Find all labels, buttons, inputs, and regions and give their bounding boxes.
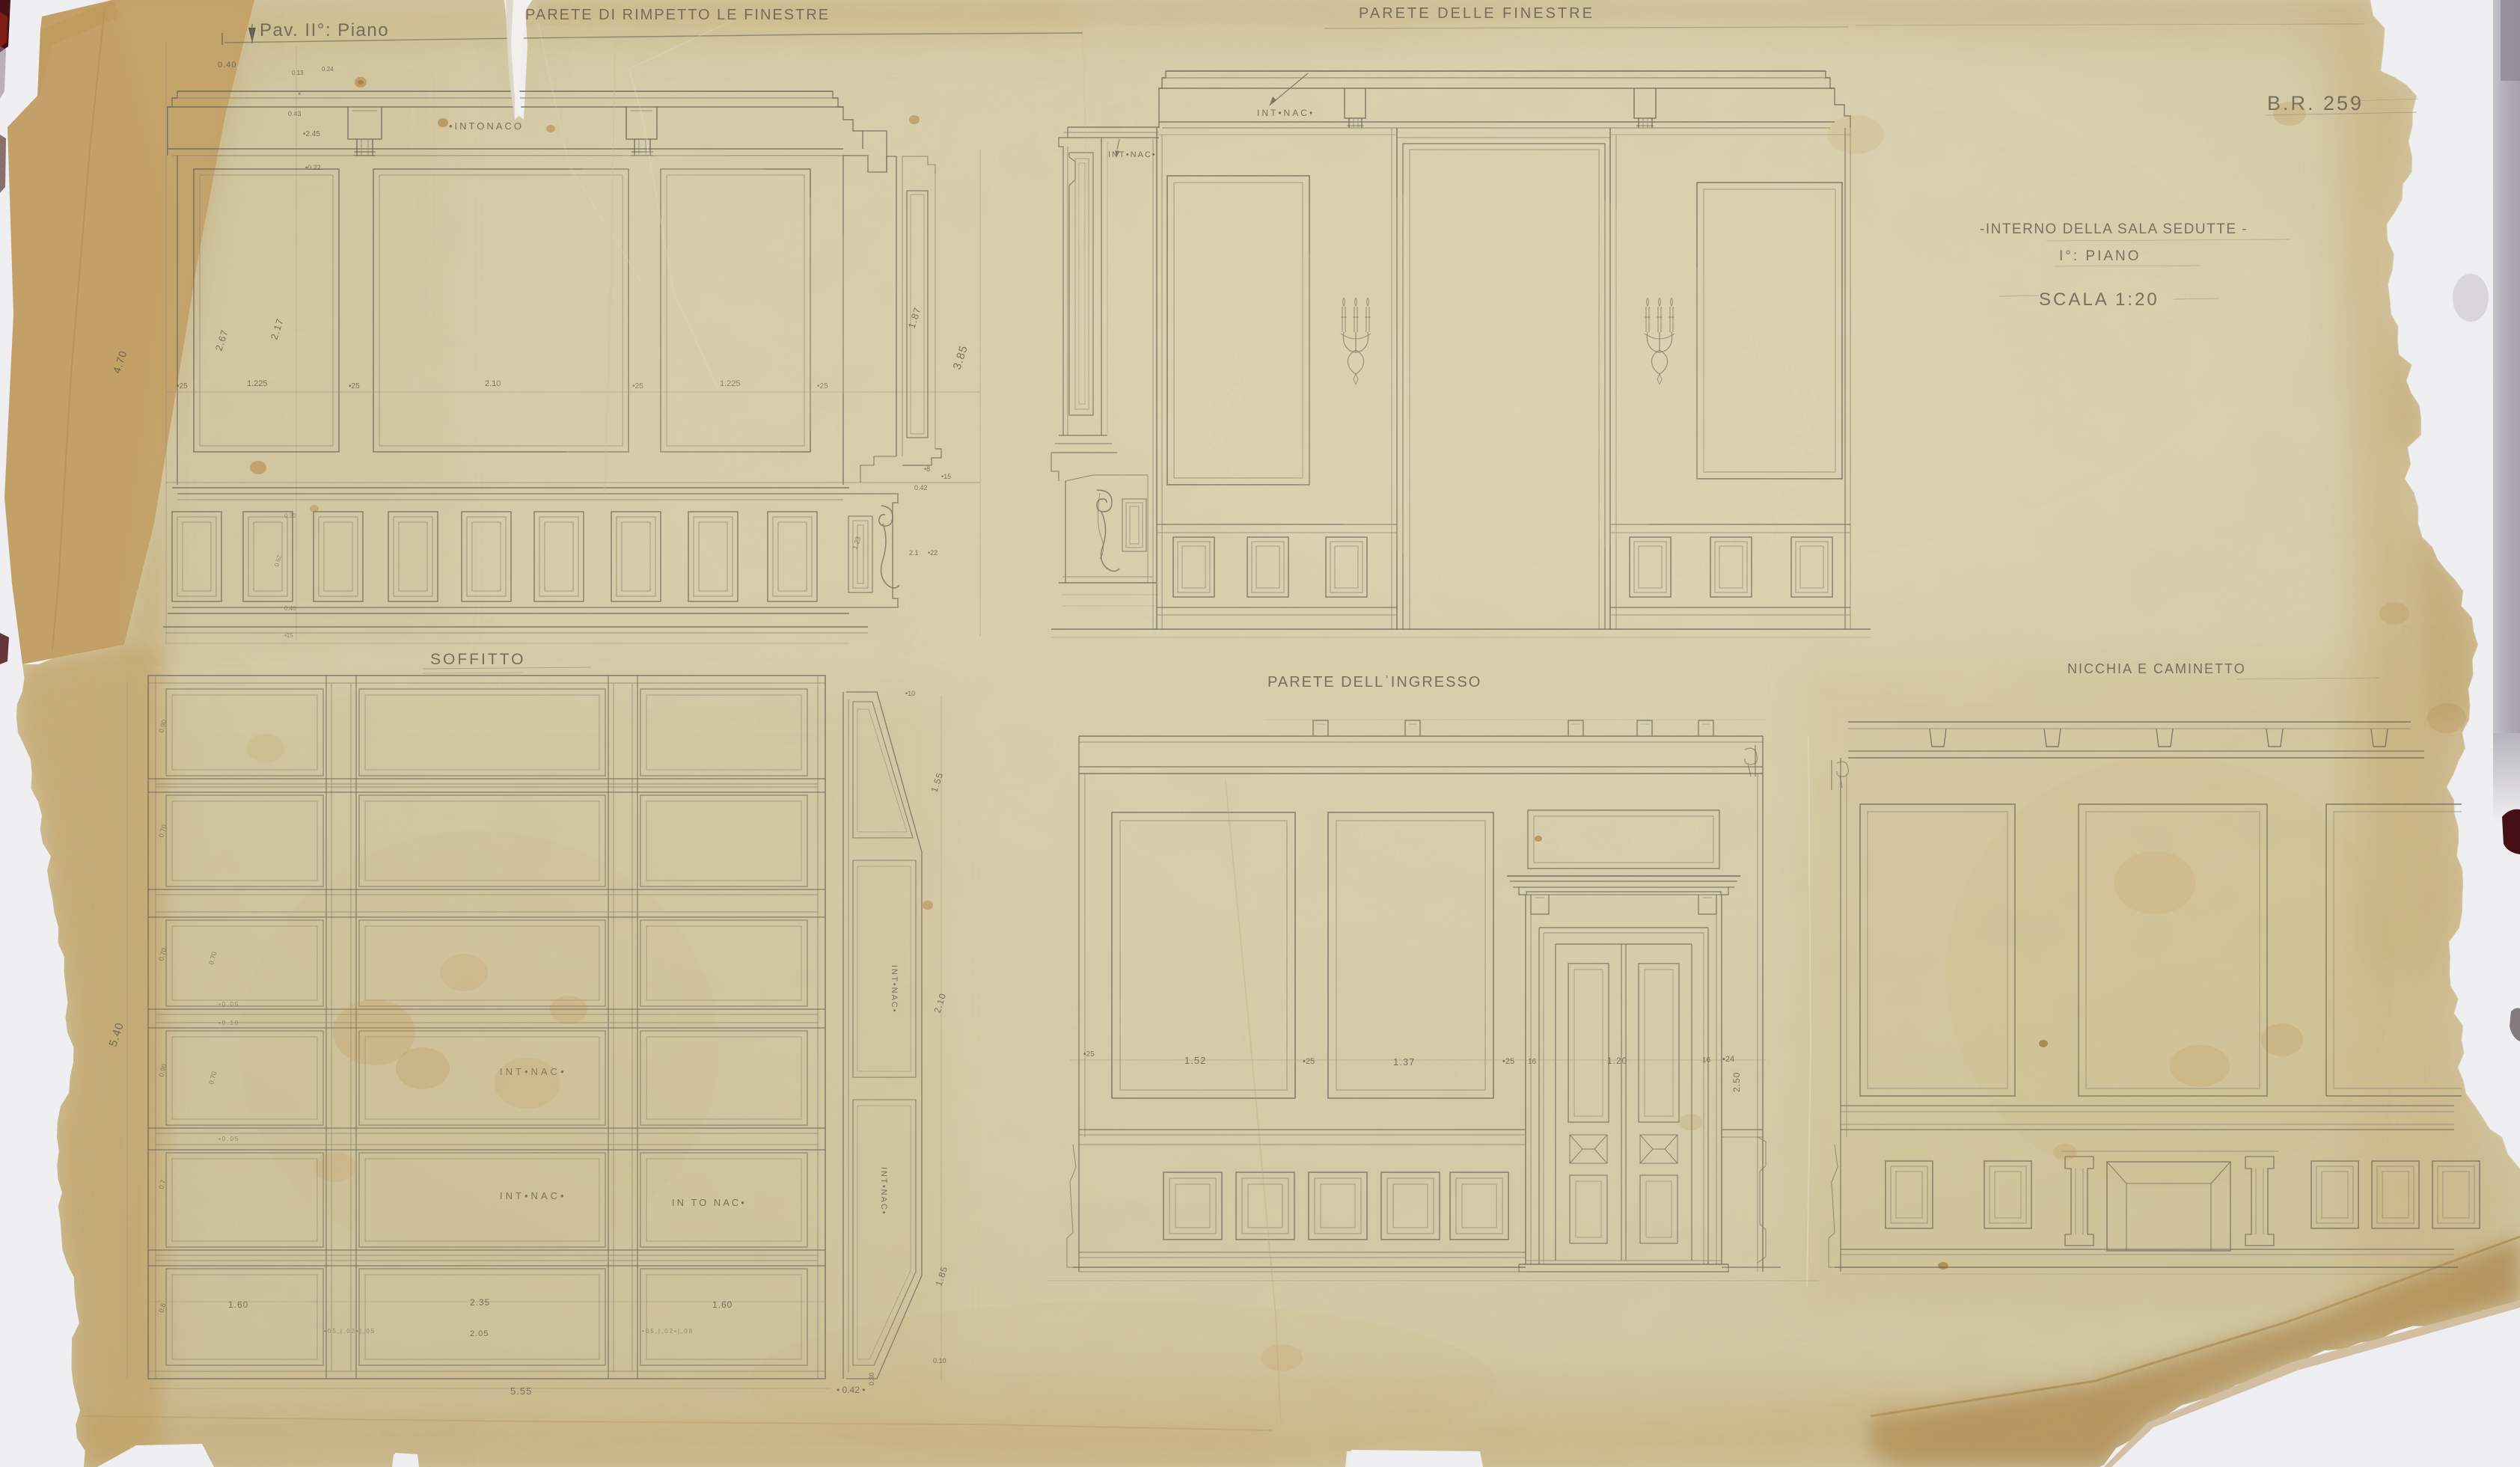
svg-text:0.40: 0.40 — [218, 61, 236, 70]
